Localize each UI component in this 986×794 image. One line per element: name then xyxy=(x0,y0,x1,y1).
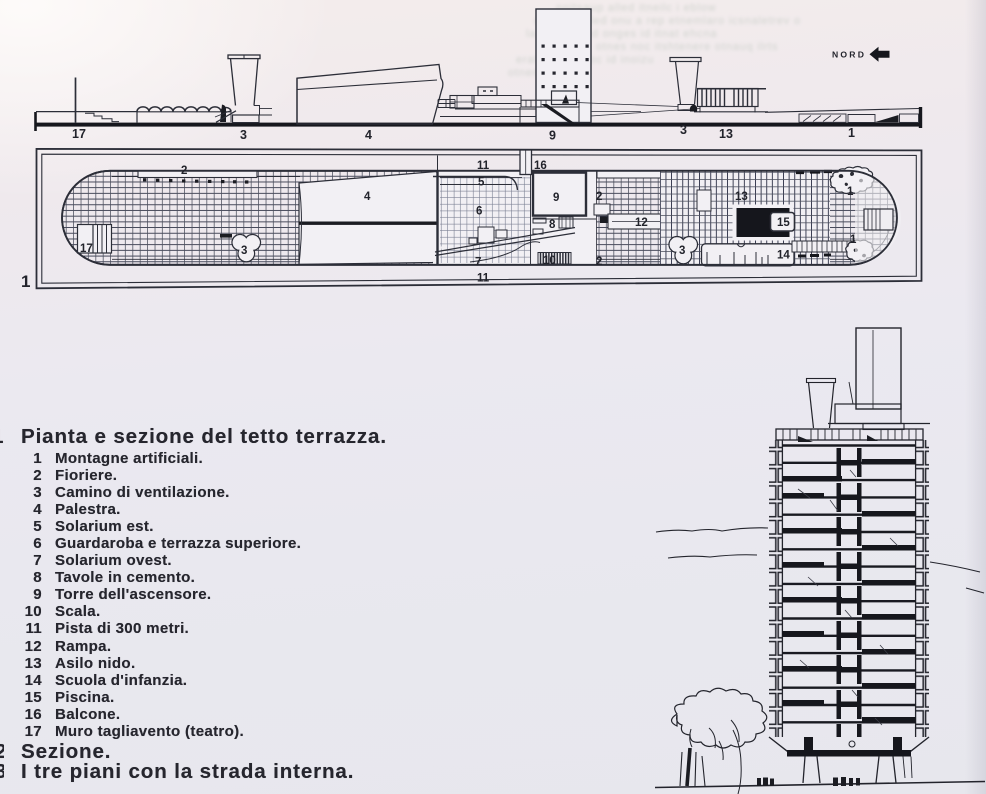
svg-text:2: 2 xyxy=(181,165,187,177)
svg-text:10: 10 xyxy=(543,255,556,267)
svg-text:3: 3 xyxy=(240,128,247,142)
svg-text:14: 14 xyxy=(777,250,790,262)
svg-text:12: 12 xyxy=(635,217,648,229)
svg-text:15: 15 xyxy=(777,217,790,229)
svg-text:7: 7 xyxy=(475,257,481,269)
svg-text:3: 3 xyxy=(241,245,247,257)
svg-text:4: 4 xyxy=(365,128,372,142)
svg-text:1: 1 xyxy=(848,126,855,140)
svg-text:17: 17 xyxy=(72,127,86,141)
svg-text:NORD: NORD xyxy=(832,50,866,60)
svg-text:11: 11 xyxy=(477,160,490,172)
svg-text:11: 11 xyxy=(477,273,490,285)
svg-text:5: 5 xyxy=(478,177,485,189)
svg-text:2: 2 xyxy=(596,256,602,268)
svg-text:3: 3 xyxy=(679,245,685,257)
svg-text:9: 9 xyxy=(549,129,556,143)
svg-text:9: 9 xyxy=(553,192,559,204)
svg-text:1: 1 xyxy=(850,234,857,246)
svg-text:13: 13 xyxy=(719,127,733,141)
svg-text:2: 2 xyxy=(596,191,602,203)
svg-text:13: 13 xyxy=(735,191,748,203)
svg-text:1: 1 xyxy=(847,186,854,198)
svg-text:4: 4 xyxy=(364,191,371,203)
svg-text:16: 16 xyxy=(534,160,547,172)
svg-text:8: 8 xyxy=(549,219,556,231)
svg-text:3: 3 xyxy=(680,123,687,137)
svg-text:17: 17 xyxy=(80,243,93,255)
svg-text:1: 1 xyxy=(21,272,30,291)
svg-text:6: 6 xyxy=(476,206,482,218)
